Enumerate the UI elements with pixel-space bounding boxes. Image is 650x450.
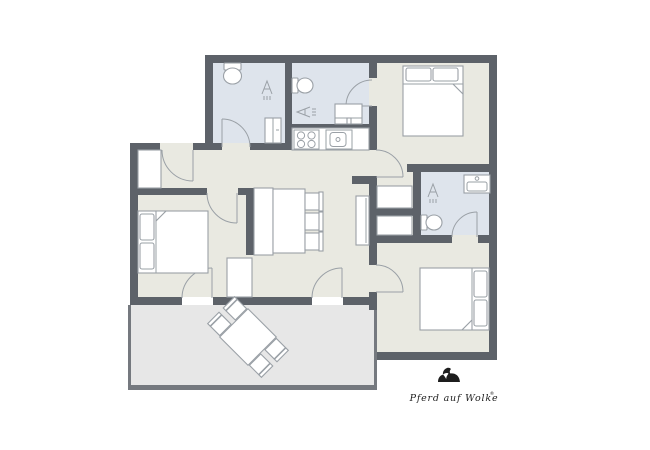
wall-left-outer bbox=[130, 143, 138, 305]
toilet-icon bbox=[421, 215, 442, 230]
wall-bottom-a bbox=[130, 297, 182, 305]
toilet-icon bbox=[292, 78, 313, 93]
pillow bbox=[406, 68, 431, 81]
double-bed bbox=[403, 66, 463, 136]
kitchen bbox=[292, 128, 369, 150]
wall-a-lower bbox=[369, 106, 377, 150]
terrace-wall-left bbox=[128, 305, 131, 389]
dining-group bbox=[254, 188, 323, 255]
pillow bbox=[140, 243, 154, 269]
wall-bath1-bottom-a bbox=[205, 143, 222, 150]
washbasin-icon bbox=[335, 104, 362, 124]
double-bed bbox=[420, 268, 489, 330]
bench bbox=[254, 188, 273, 255]
wall-c-stub bbox=[369, 292, 377, 310]
logo-registered-mark: ® bbox=[490, 390, 495, 397]
washbasin-icon bbox=[464, 175, 490, 193]
wardrobe bbox=[227, 258, 252, 297]
living-shelf bbox=[356, 196, 369, 245]
bathroom-cabinet bbox=[265, 118, 281, 143]
logo: Pferd auf Wolke ® bbox=[409, 368, 499, 404]
wall-bath3-left bbox=[413, 172, 421, 243]
wall-bath1-bottom-b bbox=[250, 143, 285, 150]
chair-icon bbox=[305, 232, 323, 251]
toilet-icon bbox=[224, 63, 242, 84]
wall-a-upper bbox=[369, 55, 377, 78]
wall-bath3-top bbox=[407, 164, 497, 172]
wall-bedroom2-bottom bbox=[377, 352, 497, 360]
wall-bath-divider bbox=[285, 55, 292, 150]
dining-table bbox=[273, 189, 305, 253]
wall-bedroom3-right bbox=[246, 188, 254, 255]
double-bed bbox=[138, 211, 208, 273]
bedroom-top-right bbox=[403, 66, 463, 136]
logo-horse-icon bbox=[438, 368, 460, 382]
wall-bath3-bottom-a bbox=[369, 235, 452, 243]
wall-right bbox=[489, 55, 497, 360]
chair-icon bbox=[305, 212, 323, 231]
wall-bath1-left bbox=[205, 55, 213, 150]
wall-bath3-bottom-b bbox=[478, 235, 497, 243]
pillow bbox=[140, 214, 154, 240]
pillow bbox=[474, 300, 487, 326]
wardrobe bbox=[377, 186, 412, 208]
chair-icon bbox=[305, 192, 323, 211]
wall-closet-divider bbox=[373, 208, 415, 216]
pillow bbox=[433, 68, 458, 81]
terrace-wall-bottom bbox=[128, 385, 377, 390]
floor-plan: Pferd auf Wolke ® bbox=[0, 0, 650, 450]
wall-top bbox=[205, 55, 497, 63]
floor-plan-page: Pferd auf Wolke ® bbox=[0, 0, 650, 450]
pillow bbox=[474, 271, 487, 297]
wall-c bbox=[369, 184, 377, 265]
wall-bedroom3-top-a bbox=[138, 188, 207, 195]
terrace-wall-right bbox=[374, 310, 377, 389]
wardrobe bbox=[377, 216, 412, 235]
bedroom-bottom-right bbox=[420, 268, 489, 330]
wall-b-stub bbox=[352, 176, 377, 184]
wall-kitchen-thin bbox=[292, 124, 369, 128]
hall-wardrobe bbox=[138, 150, 161, 188]
logo-brand-text: Pferd auf Wolke bbox=[409, 393, 499, 404]
